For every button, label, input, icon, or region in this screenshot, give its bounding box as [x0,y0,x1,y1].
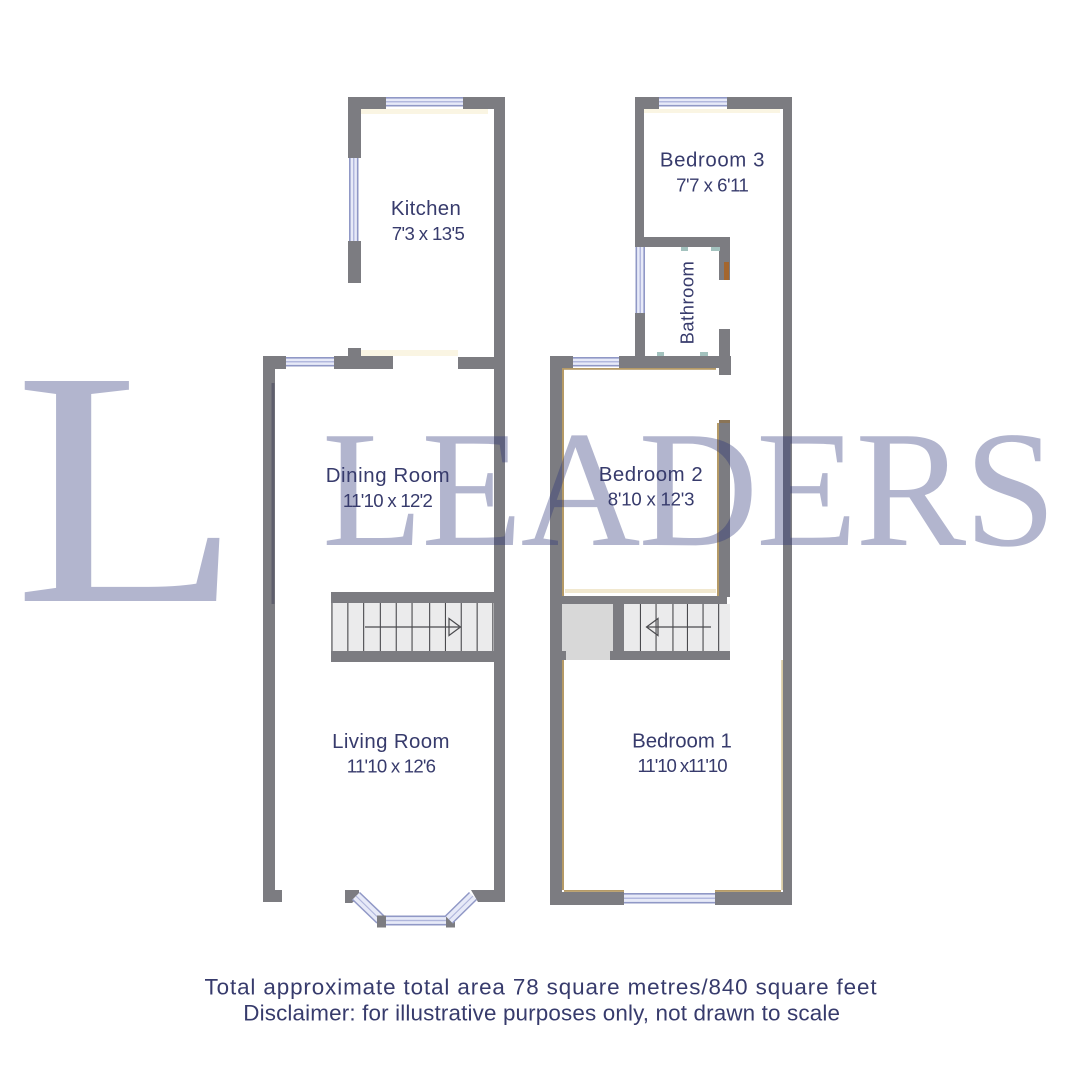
svg-text:Bedroom 3: Bedroom 3 [660,150,765,172]
svg-text:11'10 x 12'6: 11'10 x 12'6 [347,756,436,777]
svg-text:Kitchen: Kitchen [391,198,461,220]
svg-text:7'7 x 6'11: 7'7 x 6'11 [676,174,748,195]
svg-text:Bedroom 2: Bedroom 2 [599,464,704,486]
svg-text:Bedroom 1: Bedroom 1 [632,730,732,752]
svg-text:L: L [14,302,242,674]
svg-text:Living Room: Living Room [332,731,450,753]
svg-text:Total approximate total area 7: Total approximate total area 78 square m… [205,975,878,1000]
svg-text:Dining Room: Dining Room [326,465,451,487]
svg-text:11'10 x11'10: 11'10 x11'10 [637,755,727,776]
svg-text:Disclaimer: for illustrative p: Disclaimer: for illustrative purposes on… [243,1001,840,1026]
svg-text:11'10 x 12'2: 11'10 x 12'2 [343,490,433,511]
svg-text:7'3 x 13'5: 7'3 x 13'5 [392,223,465,244]
svg-text:8'10 x 12'3: 8'10 x 12'3 [608,489,695,510]
svg-text:Bathroom: Bathroom [677,261,698,345]
